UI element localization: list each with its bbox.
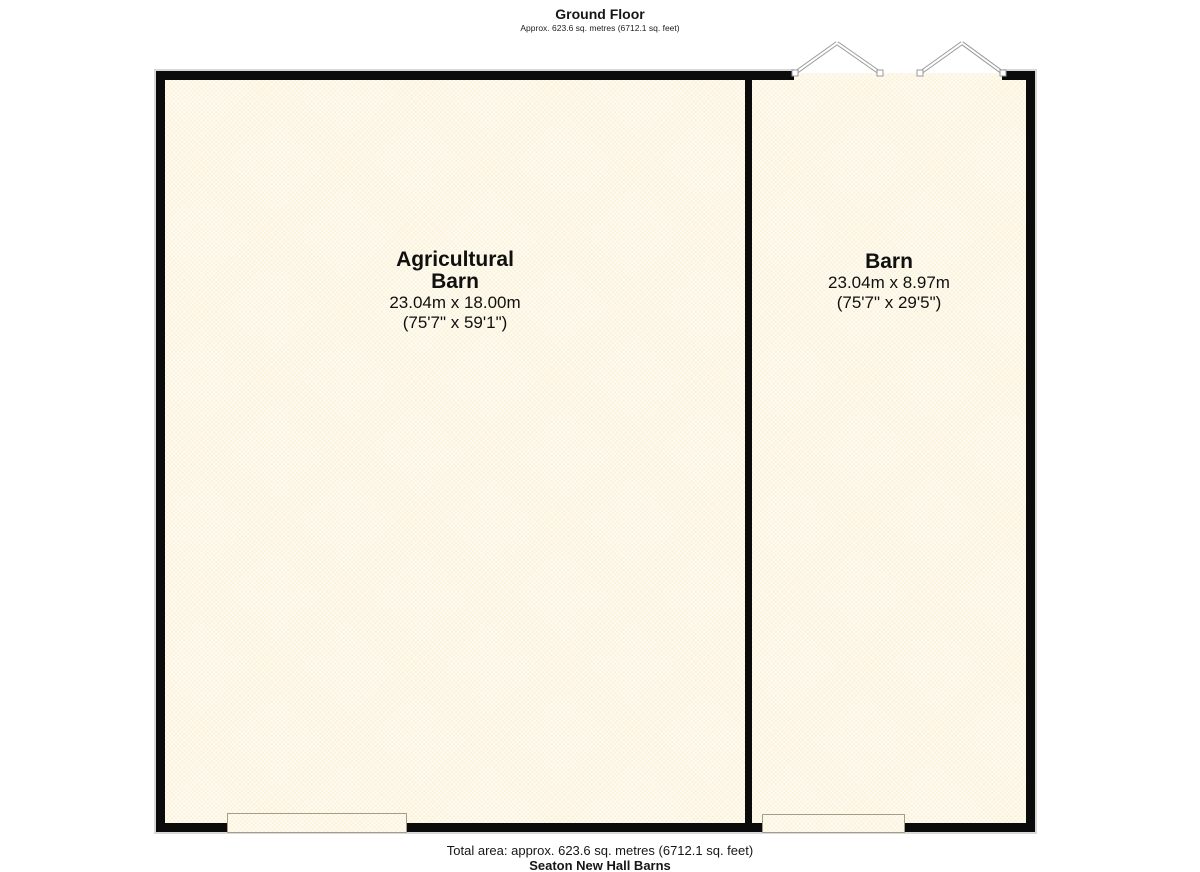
- label-barn: Barn 23.04m x 8.97m (75'7" x 29'5"): [752, 251, 1026, 313]
- room-dimensions-metric: 23.04m x 8.97m: [752, 273, 1026, 293]
- room-dimensions-imperial: (75'7" x 29'5"): [752, 293, 1026, 313]
- room-barn-floor: [752, 80, 1026, 823]
- room-name-line: Barn: [165, 271, 745, 293]
- total-area-text: Total area: approx. 623.6 sq. metres (67…: [0, 843, 1200, 858]
- floor-area-subtitle: Approx. 623.6 sq. metres (6712.1 sq. fee…: [0, 23, 1200, 33]
- double-doors-icon: [780, 30, 1020, 80]
- label-agricultural-barn: Agricultural Barn 23.04m x 18.00m (75'7"…: [165, 249, 745, 333]
- room-dimensions-imperial: (75'7" x 59'1"): [165, 313, 745, 333]
- wall-left: [156, 71, 165, 832]
- room-name-line: Barn: [752, 251, 1026, 273]
- room-dimensions-metric: 23.04m x 18.00m: [165, 293, 745, 313]
- property-name: Seaton New Hall Barns: [0, 858, 1200, 872]
- wall-right: [1026, 71, 1035, 832]
- room-agricultural-barn-floor: [165, 80, 745, 823]
- bottom-wall-opening-right: [762, 814, 905, 833]
- plan-footer: Total area: approx. 623.6 sq. metres (67…: [0, 843, 1200, 872]
- wall-top-left-segment: [156, 71, 794, 80]
- plan-header: Ground Floor Approx. 623.6 sq. metres (6…: [0, 6, 1200, 33]
- door-leaf-inner-lines: [795, 43, 1003, 73]
- room-name-line: Agricultural: [165, 249, 745, 271]
- floor-title: Ground Floor: [0, 6, 1200, 23]
- bottom-wall-opening-left: [227, 813, 407, 833]
- floorplan-page: Ground Floor Approx. 623.6 sq. metres (6…: [0, 0, 1200, 872]
- door-hinge-squares: [792, 70, 1006, 76]
- wall-room-divider: [745, 71, 752, 832]
- door-leaf-outlines: [795, 43, 1003, 73]
